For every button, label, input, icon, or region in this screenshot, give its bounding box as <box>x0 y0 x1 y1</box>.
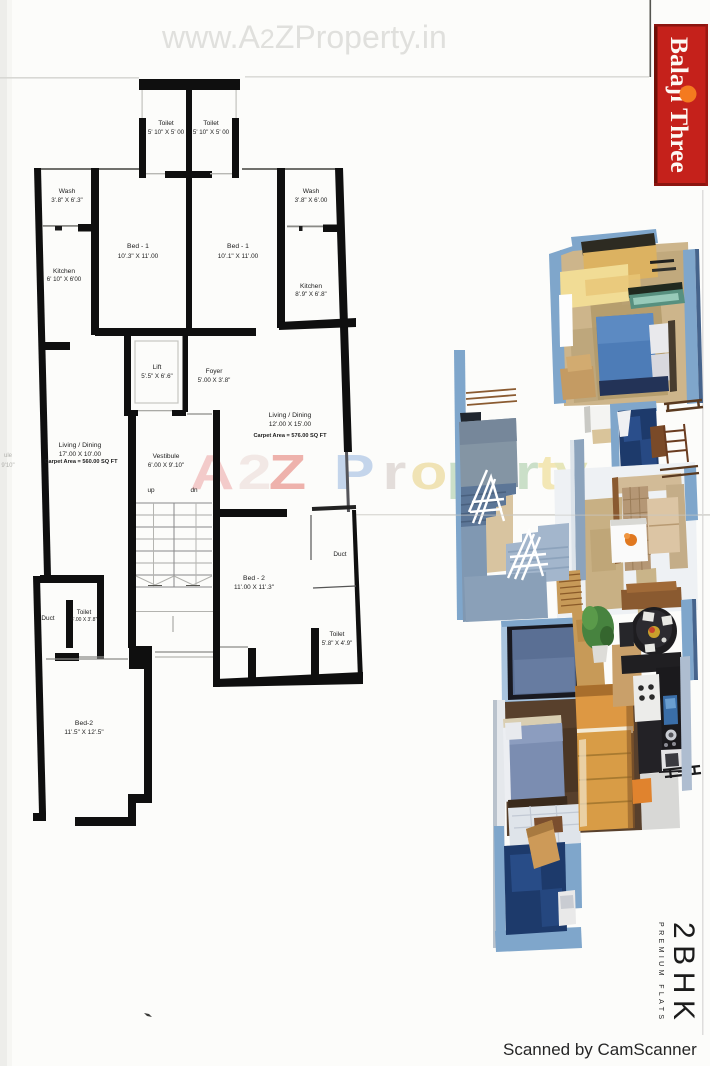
svg-text:3'.8" X 6'.00: 3'.8" X 6'.00 <box>295 197 328 204</box>
svg-text:3'.8" X 6'.3": 3'.8" X 6'.3" <box>51 197 83 204</box>
svg-text:11'.00 X 11'.3": 11'.00 X 11'.3" <box>234 584 274 591</box>
svg-text:Toilet: Toilet <box>330 631 345 638</box>
svg-text:Living / Dining: Living / Dining <box>269 412 312 419</box>
svg-text:Lift: Lift <box>153 364 162 371</box>
svg-text:10'.1" X 11'.00: 10'.1" X 11'.00 <box>218 253 259 260</box>
svg-text:up: up <box>147 487 155 494</box>
svg-text:5'.8" X 4'.9": 5'.8" X 4'.9" <box>322 641 353 647</box>
svg-text:Carpet Area = 576.00 SQ FT: Carpet Area = 576.00 SQ FT <box>253 433 327 439</box>
svg-text:8'.9" X 6'.8": 8'.9" X 6'.8" <box>295 291 327 298</box>
svg-text:Bed - 2: Bed - 2 <box>243 575 265 582</box>
svg-text:Kitchen: Kitchen <box>53 268 75 275</box>
svg-text:Foyer: Foyer <box>206 368 224 375</box>
svg-text:10'.3" X 11'.00: 10'.3" X 11'.00 <box>118 253 159 260</box>
svg-text:Bed - 1: Bed - 1 <box>227 243 249 250</box>
svg-text:Z: Z <box>269 445 306 500</box>
svg-text:Living / Dining: Living / Dining <box>59 442 102 449</box>
svg-text:Toilet: Toilet <box>158 120 174 127</box>
svg-text:Balaji Three: Balaji Three <box>665 37 694 173</box>
svg-text:Carpet Area = 560.00 SQ FT: Carpet Area = 560.00 SQ FT <box>44 459 118 465</box>
svg-text:ule: ule <box>4 453 13 459</box>
svg-text:www.A2ZProperty.in: www.A2ZProperty.in <box>161 19 447 55</box>
svg-text:Wash: Wash <box>303 188 320 195</box>
svg-text:Scanned by CamScanner: Scanned by CamScanner <box>503 1040 697 1059</box>
svg-text:PREMIUM FLATS: PREMIUM FLATS <box>657 922 664 1022</box>
svg-text:17'.00 X 10'.00: 17'.00 X 10'.00 <box>59 451 102 458</box>
svg-text:5' 10" X 5' 00: 5' 10" X 5' 00 <box>193 129 230 136</box>
svg-text:Vestibule: Vestibule <box>153 453 180 460</box>
svg-text:5' 10" X 5' 00: 5' 10" X 5' 00 <box>148 129 185 136</box>
svg-text:2: 2 <box>238 445 272 500</box>
svg-text:Toilet: Toilet <box>77 609 92 616</box>
svg-text:Toilet: Toilet <box>203 120 219 127</box>
svg-text:5'.5" X 6'.6": 5'.5" X 6'.6" <box>141 373 173 380</box>
svg-text:r: r <box>515 445 539 500</box>
svg-text:Wash: Wash <box>59 188 76 195</box>
svg-text:12'.00 X 15'.00: 12'.00 X 15'.00 <box>269 421 312 428</box>
svg-text:2BHK: 2BHK <box>667 922 700 1026</box>
svg-text:Duct: Duct <box>333 551 346 558</box>
svg-text:9'10": 9'10" <box>1 463 14 469</box>
svg-text:6'.00 X 3'.8": 6'.00 X 3'.8" <box>71 617 98 623</box>
svg-text:5'.00 X 3'.8": 5'.00 X 3'.8" <box>198 377 231 384</box>
svg-text:Duct: Duct <box>41 615 54 622</box>
svg-text:P: P <box>334 445 375 500</box>
svg-text:6' 10" X 6'00: 6' 10" X 6'00 <box>47 276 82 283</box>
svg-text:o: o <box>410 445 447 500</box>
svg-text:6'.00 X 9'.10": 6'.00 X 9'.10" <box>148 462 184 469</box>
svg-text:Bed - 1: Bed - 1 <box>127 243 149 250</box>
svg-text:dn: dn <box>190 487 198 494</box>
svg-text:Kitchen: Kitchen <box>300 283 322 290</box>
svg-text:Bed-2: Bed-2 <box>75 720 93 727</box>
svg-text:r: r <box>383 445 407 500</box>
svg-text:11'.5" X 12'.5": 11'.5" X 12'.5" <box>64 729 103 736</box>
